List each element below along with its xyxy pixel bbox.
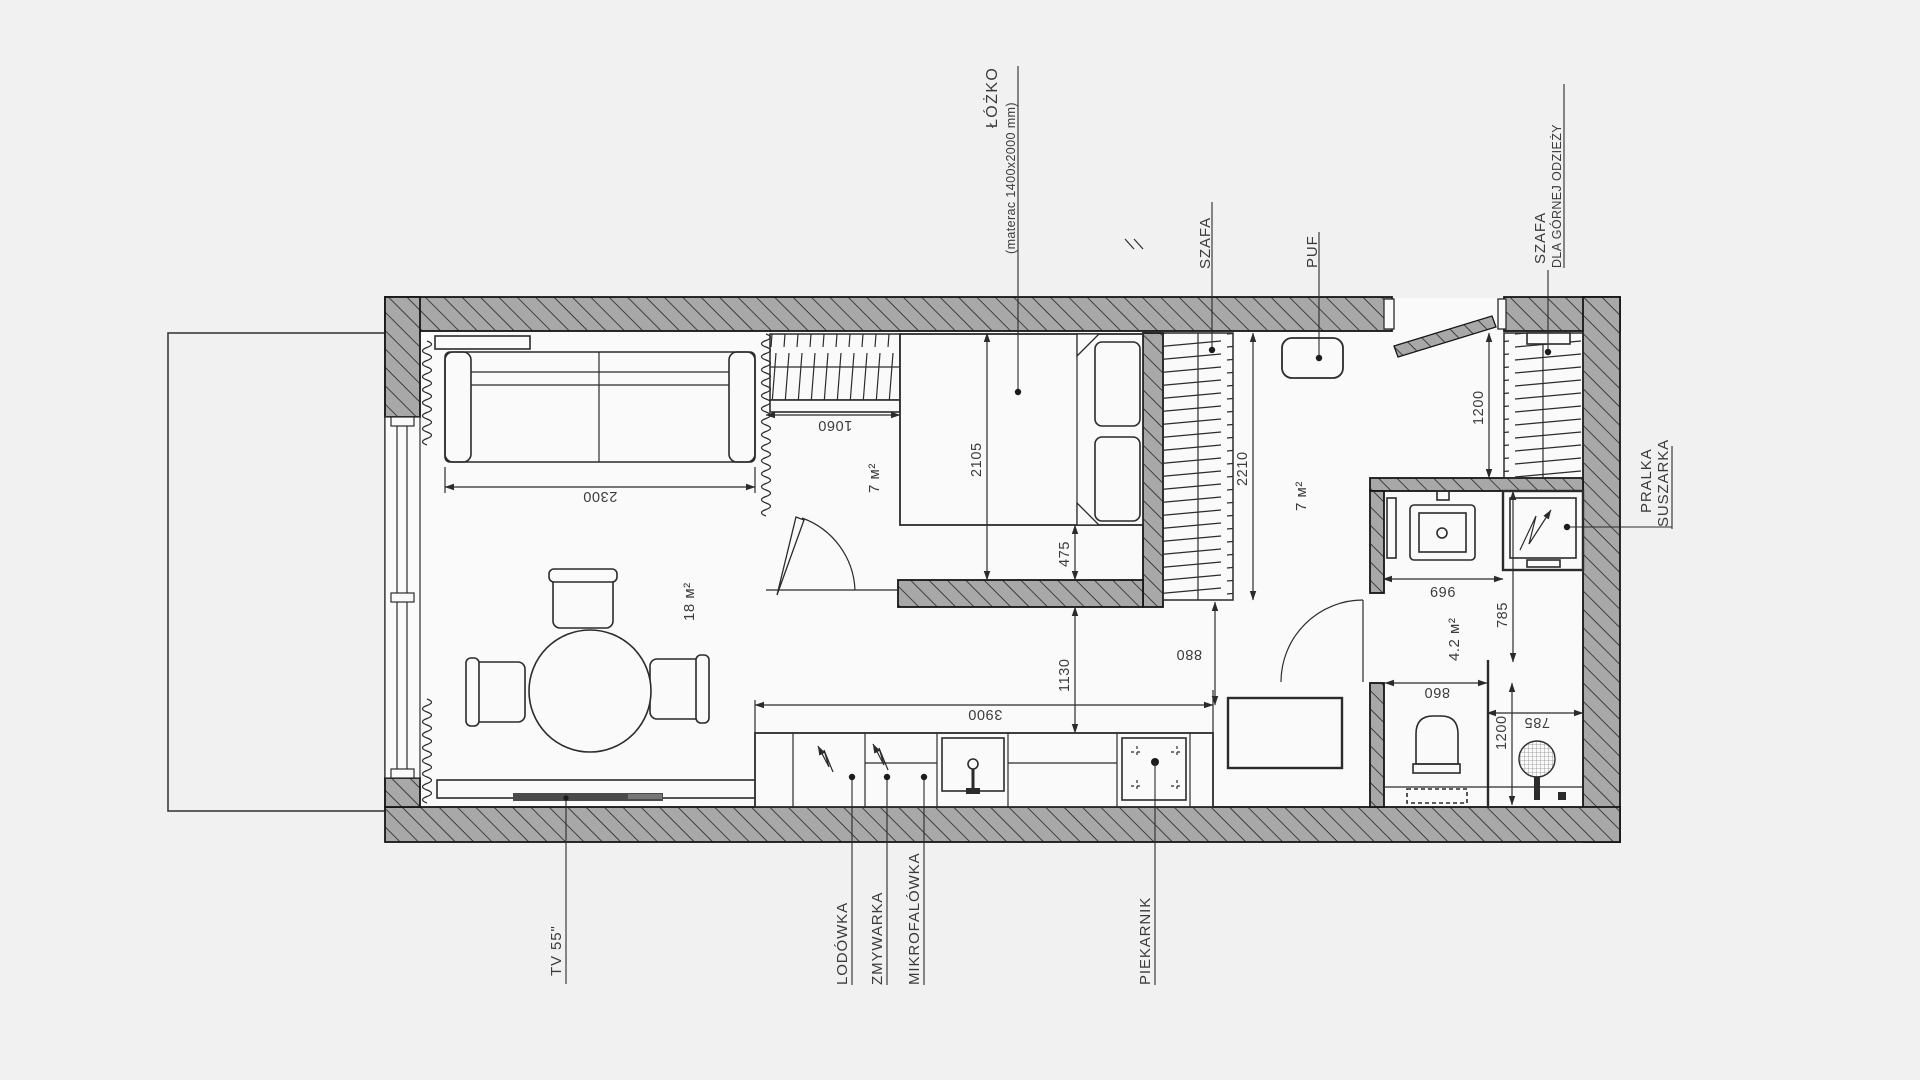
window-left	[385, 417, 420, 778]
floor-plan-page: 2300 1060 2105 475 1130 3900 2210	[0, 0, 1920, 1080]
dim-text: 2105	[969, 442, 985, 477]
puf	[1282, 338, 1343, 378]
chair	[650, 655, 709, 723]
washer-label-2: SUSZARKA	[1655, 439, 1672, 527]
coat-closet-label-1: SZAFA	[1532, 212, 1549, 264]
tv-console	[437, 780, 757, 801]
area-bathroom: 4.2 м²	[1446, 618, 1463, 661]
dim-text: 696	[1430, 585, 1456, 601]
bed-label-text: ŁÓŻKO	[982, 67, 1001, 128]
dishwasher-label-text: ZMYWARKA	[869, 892, 886, 985]
wall-left-bottom	[385, 778, 420, 807]
wall-bedroom-stub	[898, 580, 1143, 607]
oven-label-text: PIEKARNIK	[1137, 897, 1154, 985]
chair	[466, 658, 525, 726]
kitchen-counter	[755, 733, 1213, 807]
tv-label-text: TV 55"	[548, 925, 565, 976]
dim-text: 785	[1524, 714, 1550, 730]
floor-plan: 2300 1060 2105 475 1130 3900 2210	[0, 0, 1920, 1080]
tv-detail	[628, 794, 662, 799]
dim-text: 3900	[968, 706, 1003, 722]
microwave-label-text: MIKROFALÓWKA	[906, 853, 923, 986]
coat-closet	[1504, 333, 1583, 478]
wall-bath-top	[1370, 478, 1583, 491]
wall-top	[385, 297, 1392, 331]
fridge-label-text: LODÓWKA	[834, 902, 851, 985]
dim-text: 1200	[1471, 390, 1487, 425]
area-bedroom: 7 м²	[866, 463, 883, 493]
wall-bedroom-right	[1143, 333, 1163, 607]
dim-text: 860	[1424, 684, 1450, 700]
radiator-shelf	[435, 336, 530, 349]
hall-wardrobe	[1163, 333, 1233, 600]
dim-text: 1060	[818, 417, 853, 433]
wall-bath-left-upper	[1370, 491, 1384, 593]
washer-label-1: PRALKA	[1638, 448, 1655, 513]
bed	[900, 334, 1143, 525]
bedroom-wardrobe	[770, 334, 900, 412]
dim-text: 785	[1495, 602, 1511, 628]
dim-text: 475	[1057, 541, 1073, 567]
wall-bath-left-lower	[1370, 683, 1384, 807]
dining-table	[529, 630, 651, 752]
window-mullion	[391, 769, 414, 778]
wall-right	[1583, 297, 1620, 842]
bed-label-sub: (materac 1400x2000 mm)	[1004, 102, 1018, 254]
window-mullion	[391, 417, 414, 426]
balcony	[168, 333, 385, 811]
dim-text: 880	[1176, 646, 1202, 662]
vent-ticks	[1125, 239, 1143, 249]
area-living: 18 м²	[681, 582, 698, 621]
door-jamb	[1498, 299, 1506, 329]
hall-cabinet	[1228, 698, 1342, 768]
dim-text: 1200	[1494, 715, 1510, 750]
wall-left-top	[385, 297, 420, 417]
kitchen	[755, 733, 1213, 807]
sofa	[445, 352, 755, 462]
washer-dryer	[1503, 491, 1583, 570]
window-mullion	[391, 593, 414, 602]
chair	[549, 569, 617, 628]
coat-closet-label-2: DLA GÓRNEJ ODZIEŻY	[1549, 124, 1564, 268]
wall-bottom	[385, 807, 1620, 842]
dim-text: 1130	[1057, 658, 1073, 692]
dim-text: 2210	[1235, 451, 1251, 486]
area-hallway: 7 м²	[1293, 481, 1310, 511]
door-jamb	[1384, 299, 1394, 329]
dim-text: 2300	[583, 488, 618, 504]
